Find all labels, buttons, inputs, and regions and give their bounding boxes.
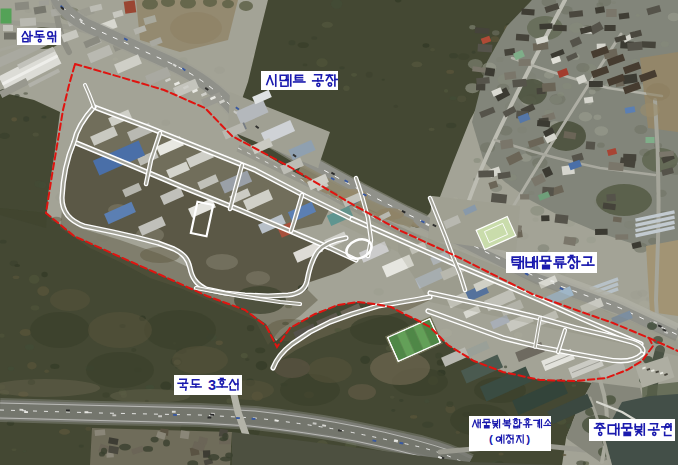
svg-text:): ) bbox=[526, 433, 530, 445]
svg-text:3: 3 bbox=[208, 377, 216, 393]
svg-text:(: ( bbox=[489, 433, 493, 445]
